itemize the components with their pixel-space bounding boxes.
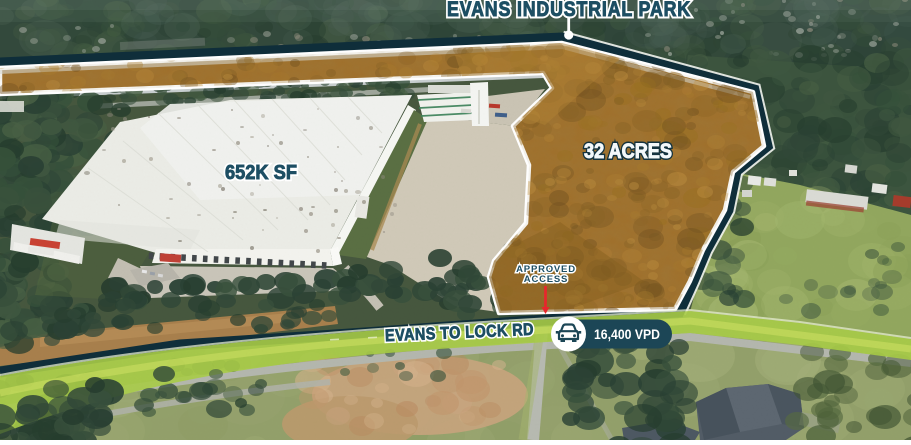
svg-text:652K SF: 652K SF bbox=[225, 162, 297, 184]
svg-text:ACCESS: ACCESS bbox=[524, 274, 568, 285]
svg-text:EVANS INDUSTRIAL PARK: EVANS INDUSTRIAL PARK bbox=[447, 0, 691, 21]
svg-text:32 ACRES: 32 ACRES bbox=[584, 140, 672, 163]
svg-text:16,400 VPD: 16,400 VPD bbox=[594, 327, 660, 342]
